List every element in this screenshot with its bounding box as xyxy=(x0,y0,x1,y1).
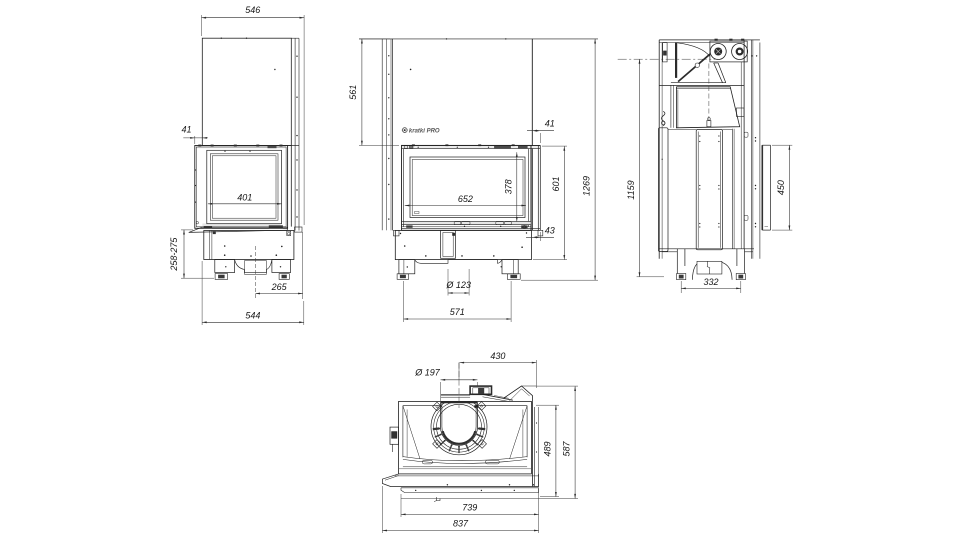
svg-text:1269: 1269 xyxy=(582,176,592,196)
svg-text:571: 571 xyxy=(450,307,465,317)
svg-text:265: 265 xyxy=(271,282,288,292)
svg-text:450: 450 xyxy=(776,180,786,195)
svg-text:601: 601 xyxy=(551,176,561,191)
svg-text:332: 332 xyxy=(703,277,718,287)
svg-text:561: 561 xyxy=(348,85,358,100)
svg-text:489: 489 xyxy=(542,441,552,456)
svg-text:430: 430 xyxy=(490,351,505,361)
svg-text:258-275: 258-275 xyxy=(169,237,179,272)
svg-text:587: 587 xyxy=(562,441,572,457)
svg-text:kratki PRO: kratki PRO xyxy=(409,128,440,134)
svg-text:43: 43 xyxy=(545,226,555,236)
svg-text:544: 544 xyxy=(245,310,260,320)
svg-text:739: 739 xyxy=(462,503,477,513)
svg-text:1159: 1159 xyxy=(626,180,636,199)
svg-text:546: 546 xyxy=(245,5,260,15)
svg-text:41: 41 xyxy=(545,119,555,129)
svg-text:652: 652 xyxy=(458,194,473,204)
svg-text:378: 378 xyxy=(503,179,513,194)
svg-text:401: 401 xyxy=(237,192,252,202)
svg-text:41: 41 xyxy=(181,125,191,135)
svg-text:Ø 197: Ø 197 xyxy=(414,367,441,377)
svg-text:Ø 123: Ø 123 xyxy=(445,280,471,290)
svg-text:837: 837 xyxy=(453,519,469,529)
